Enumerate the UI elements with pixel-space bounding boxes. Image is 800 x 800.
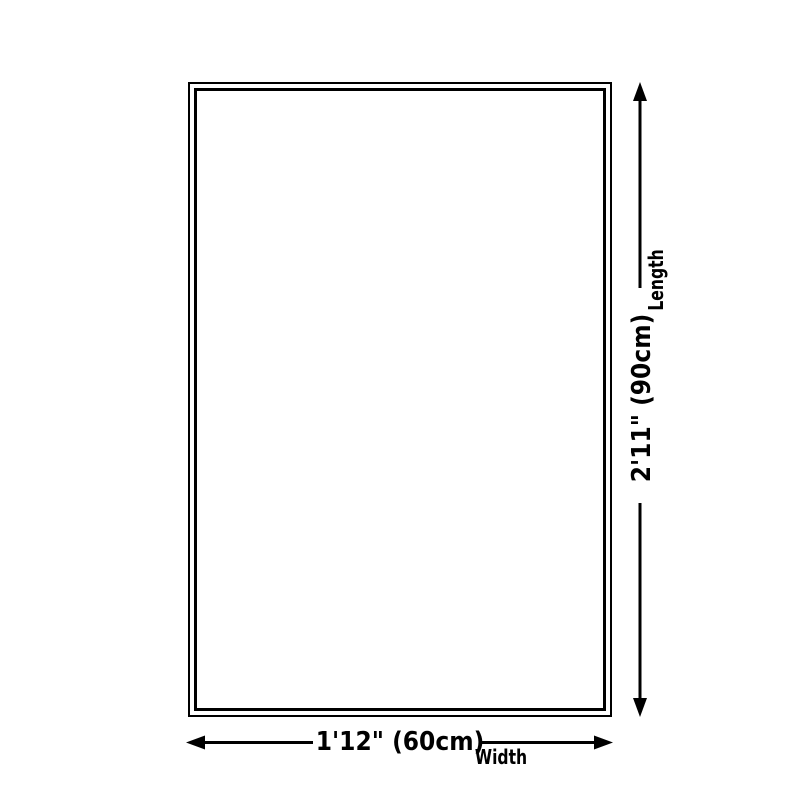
length-label: Length <box>646 249 666 310</box>
width-value: 1'12" (60cm) <box>316 729 485 755</box>
width-label: Width <box>475 747 527 767</box>
product-dimension-diagram: 2'11" (90cm) Length 1'12" (60cm) Width <box>0 0 800 800</box>
down-arrowhead-icon <box>633 698 647 717</box>
dimension-arrows <box>0 0 800 800</box>
right-arrowhead-icon <box>594 736 613 750</box>
length-value: 2'11" (90cm) <box>629 314 655 483</box>
